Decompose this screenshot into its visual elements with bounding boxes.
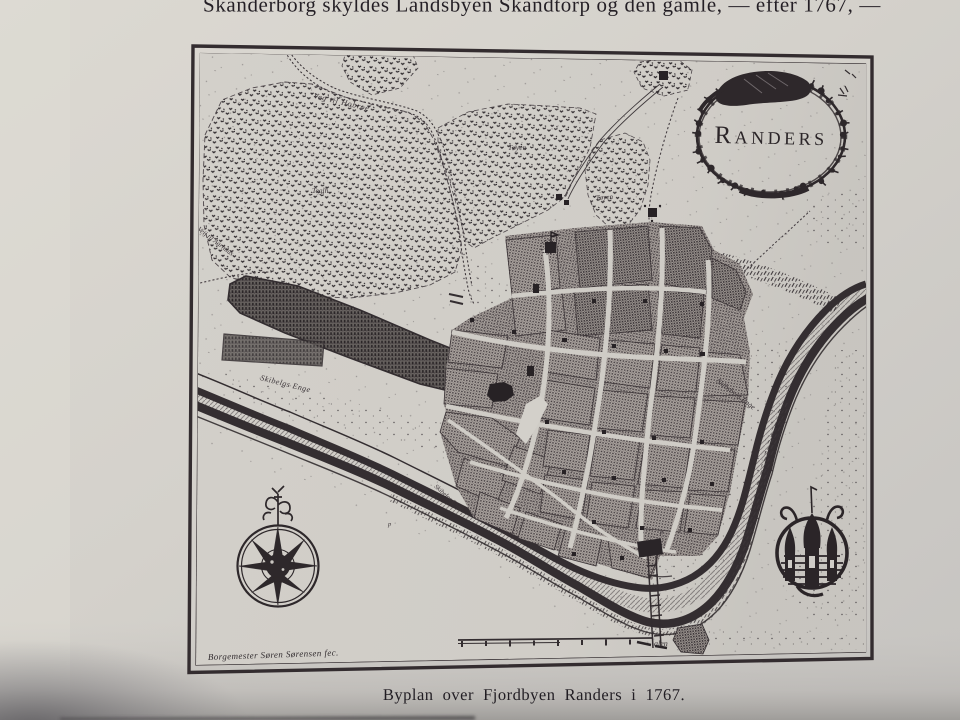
svg-text:Tøyen: Tøyen bbox=[596, 193, 614, 202]
svg-text:Teglh.: Teglh. bbox=[312, 186, 330, 195]
svg-text:Skanderborg skyldes Landsbyen: Skanderborg skyldes Landsbyen Skandtorp … bbox=[203, 0, 881, 17]
svg-text:Byplan over Fjordbyen Randers: Byplan over Fjordbyen Randers i 1767. bbox=[383, 685, 685, 704]
svg-text:Tøyen: Tøyen bbox=[508, 143, 527, 152]
